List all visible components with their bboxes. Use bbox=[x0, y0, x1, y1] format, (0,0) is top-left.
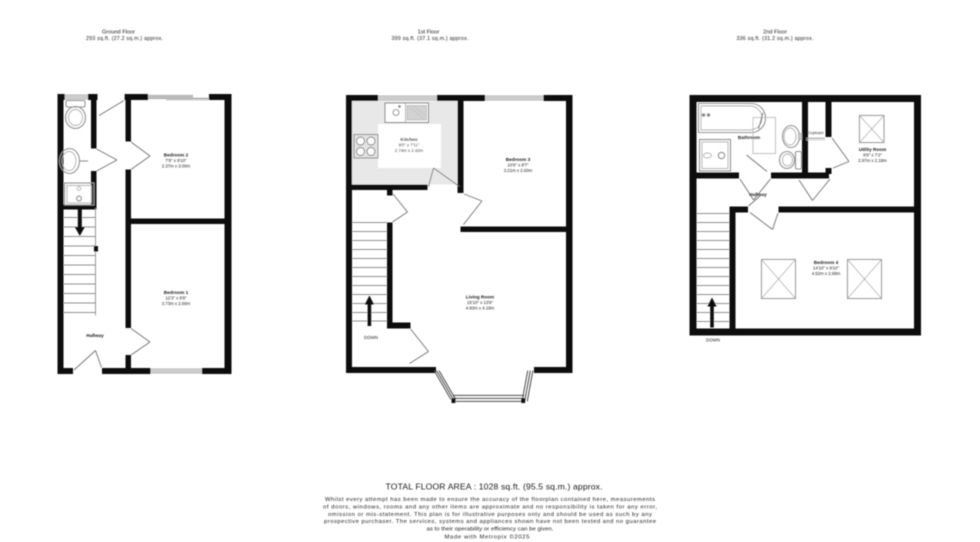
svg-text:Ground Floor: Ground Floor bbox=[102, 29, 135, 35]
svg-text:9'9" x 7'2": 9'9" x 7'2" bbox=[863, 153, 882, 158]
svg-text:9'0" x 7'11": 9'0" x 7'11" bbox=[399, 143, 420, 148]
svg-text:12'3" x 8'9": 12'3" x 8'9" bbox=[165, 296, 187, 301]
svg-text:Bedroom 4: Bedroom 4 bbox=[814, 260, 839, 265]
svg-text:Whilst every attempt has been: Whilst every attempt has been made to en… bbox=[325, 497, 655, 503]
svg-text:2nd Floor: 2nd Floor bbox=[763, 29, 787, 35]
svg-text:4.83m x 4.19m: 4.83m x 4.19m bbox=[466, 306, 495, 311]
svg-text:7'9" x 9'10": 7'9" x 9'10" bbox=[165, 158, 187, 163]
svg-text:Bedroom 3: Bedroom 3 bbox=[506, 157, 531, 162]
svg-text:TOTAL FLOOR AREA : 1028 sq.ft.: TOTAL FLOOR AREA : 1028 sq.ft. (95.5 sq.… bbox=[386, 482, 603, 492]
svg-text:3.73m x 2.66m: 3.73m x 2.66m bbox=[162, 301, 191, 306]
svg-text:DOWN: DOWN bbox=[706, 338, 720, 343]
svg-text:14'10" x 9'10": 14'10" x 9'10" bbox=[813, 266, 839, 271]
svg-text:Kitchen: Kitchen bbox=[400, 137, 417, 142]
svg-text:Bedroom 2: Bedroom 2 bbox=[164, 153, 189, 158]
svg-text:Hallway: Hallway bbox=[749, 192, 767, 197]
svg-text:10'6" x 8'7": 10'6" x 8'7" bbox=[507, 163, 529, 168]
svg-text:293 sq.ft. (27.2 sq.m.) approx: 293 sq.ft. (27.2 sq.m.) approx. bbox=[86, 36, 163, 42]
svg-text:Living Room: Living Room bbox=[466, 295, 494, 300]
svg-text:2.74m x 2.42m: 2.74m x 2.42m bbox=[395, 148, 424, 153]
svg-text:Cupboard: Cupboard bbox=[809, 131, 824, 135]
svg-text:336 sq.ft. (31.2 sq.m.) approx: 336 sq.ft. (31.2 sq.m.) approx. bbox=[737, 36, 814, 42]
svg-text:Hallway: Hallway bbox=[86, 333, 104, 338]
svg-text:15'10" x 13'9": 15'10" x 13'9" bbox=[467, 300, 493, 305]
svg-text:399 sq.ft. (37.1 sq.m.) approx: 399 sq.ft. (37.1 sq.m.) approx. bbox=[392, 36, 469, 42]
svg-text:4.52m x 2.99m: 4.52m x 2.99m bbox=[812, 271, 841, 276]
svg-text:DOWN: DOWN bbox=[364, 335, 378, 340]
svg-text:of doors, windows, rooms and a: of doors, windows, rooms and any other i… bbox=[323, 504, 657, 510]
svg-text:Utility Room: Utility Room bbox=[859, 147, 887, 152]
svg-text:3.21m x 2.60m: 3.21m x 2.60m bbox=[504, 168, 533, 173]
svg-text:omission or mis-statement. Thi: omission or mis-statement. This plan is … bbox=[328, 512, 652, 518]
svg-text:1st Floor: 1st Floor bbox=[418, 29, 440, 35]
svg-text:Made with Metropix ©2025: Made with Metropix ©2025 bbox=[445, 533, 531, 540]
svg-text:Bedroom 1: Bedroom 1 bbox=[164, 290, 189, 295]
svg-text:Bathroom: Bathroom bbox=[738, 135, 760, 140]
svg-text:as to their operability or eff: as to their operability or efficiency ca… bbox=[427, 527, 554, 533]
svg-text:prospective purchaser. The ser: prospective purchaser. The services, sys… bbox=[324, 519, 657, 525]
svg-text:2.97m x 2.18m: 2.97m x 2.18m bbox=[858, 158, 887, 163]
svg-text:2.37m x 3.00m: 2.37m x 3.00m bbox=[162, 164, 191, 169]
